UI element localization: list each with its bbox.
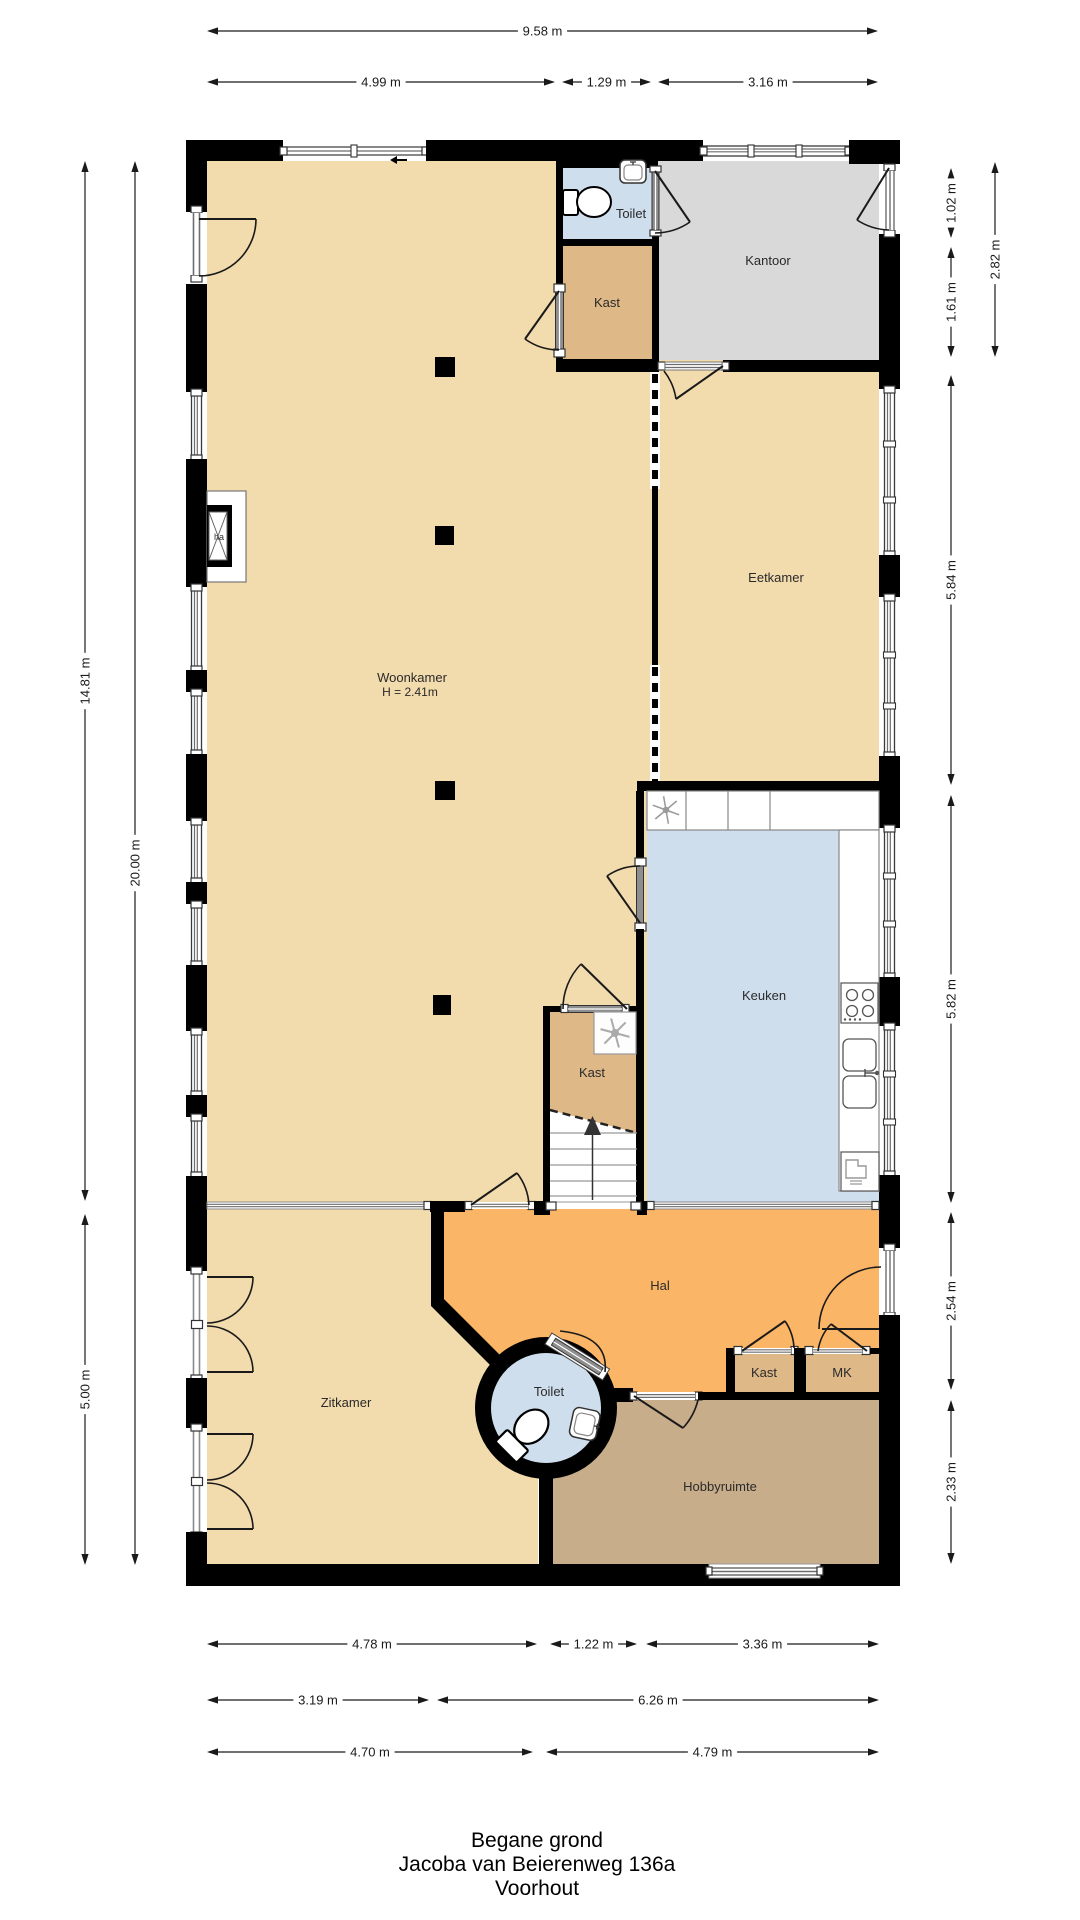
svg-text:Kantoor: Kantoor: [745, 253, 791, 268]
svg-text:Hobbyruimte: Hobbyruimte: [683, 1479, 757, 1494]
svg-text:Begane grond: Begane grond: [471, 1829, 603, 1852]
svg-text:14.81 m: 14.81 m: [78, 658, 93, 705]
svg-text:1.29 m: 1.29 m: [587, 75, 627, 90]
svg-text:4.99 m: 4.99 m: [361, 75, 401, 90]
svg-text:4.70 m: 4.70 m: [350, 1745, 390, 1760]
svg-text:Jacoba van Beierenweg 136a: Jacoba van Beierenweg 136a: [399, 1853, 676, 1876]
svg-text:3.16 m: 3.16 m: [748, 75, 788, 90]
svg-text:1.02 m: 1.02 m: [944, 183, 959, 223]
svg-text:Woonkamer: Woonkamer: [377, 670, 448, 685]
svg-text:Kast: Kast: [751, 1365, 777, 1380]
svg-text:2.54 m: 2.54 m: [944, 1281, 959, 1321]
svg-text:ha: ha: [214, 532, 224, 542]
svg-text:4.78 m: 4.78 m: [352, 1637, 392, 1652]
svg-text:H = 2.41m: H = 2.41m: [382, 685, 438, 699]
svg-text:3.19 m: 3.19 m: [298, 1693, 338, 1708]
svg-text:Toilet: Toilet: [616, 206, 647, 221]
svg-text:Kast: Kast: [594, 295, 620, 310]
svg-text:5.00 m: 5.00 m: [78, 1370, 93, 1410]
svg-text:9.58 m: 9.58 m: [523, 24, 563, 39]
svg-text:Hal: Hal: [650, 1278, 670, 1293]
svg-text:Toilet: Toilet: [534, 1384, 565, 1399]
svg-text:3.36 m: 3.36 m: [743, 1637, 783, 1652]
svg-text:MK: MK: [832, 1365, 852, 1380]
svg-text:Kast: Kast: [579, 1065, 605, 1080]
svg-text:Voorhout: Voorhout: [495, 1877, 579, 1900]
svg-text:20.00 m: 20.00 m: [128, 840, 143, 887]
svg-text:1.22 m: 1.22 m: [574, 1637, 614, 1652]
svg-text:Eetkamer: Eetkamer: [748, 570, 804, 585]
svg-text:4.79 m: 4.79 m: [693, 1745, 733, 1760]
svg-text:5.84 m: 5.84 m: [944, 560, 959, 600]
svg-text:Zitkamer: Zitkamer: [321, 1395, 372, 1410]
svg-text:Keuken: Keuken: [742, 988, 786, 1003]
svg-text:6.26 m: 6.26 m: [638, 1693, 678, 1708]
svg-text:2.82 m: 2.82 m: [988, 240, 1003, 280]
svg-text:1.61 m: 1.61 m: [944, 282, 959, 322]
svg-text:2.33 m: 2.33 m: [944, 1462, 959, 1502]
svg-text:5.82 m: 5.82 m: [944, 979, 959, 1019]
